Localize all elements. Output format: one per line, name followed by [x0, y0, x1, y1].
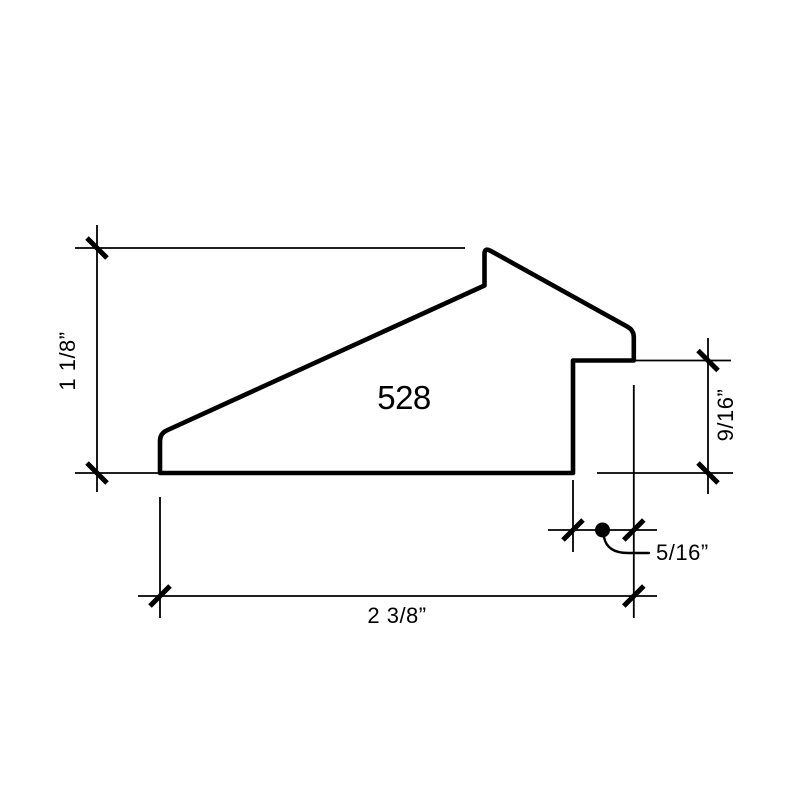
dim-rabbet-width-label: 5/16”: [656, 540, 709, 565]
profile-outline: [160, 250, 634, 473]
dim-overall-width: 2 3/8”: [138, 385, 657, 628]
dim-rabbet-height-label: 9/16”: [713, 389, 738, 442]
dim-overall-height-label: 1 1/8”: [55, 331, 80, 390]
part-number-label: 528: [377, 379, 431, 416]
dim-overall-height: 1 1/8”: [55, 225, 465, 492]
dim-overall-width-label: 2 3/8”: [367, 603, 426, 628]
leader-dot: [595, 523, 610, 538]
dim-rabbet-width: 5/16”: [548, 480, 709, 565]
drawing-page: 1 1/8” 9/16” 2 3/8” 5/: [0, 0, 800, 800]
profile-drawing-canvas: 1 1/8” 9/16” 2 3/8” 5/: [0, 0, 800, 800]
